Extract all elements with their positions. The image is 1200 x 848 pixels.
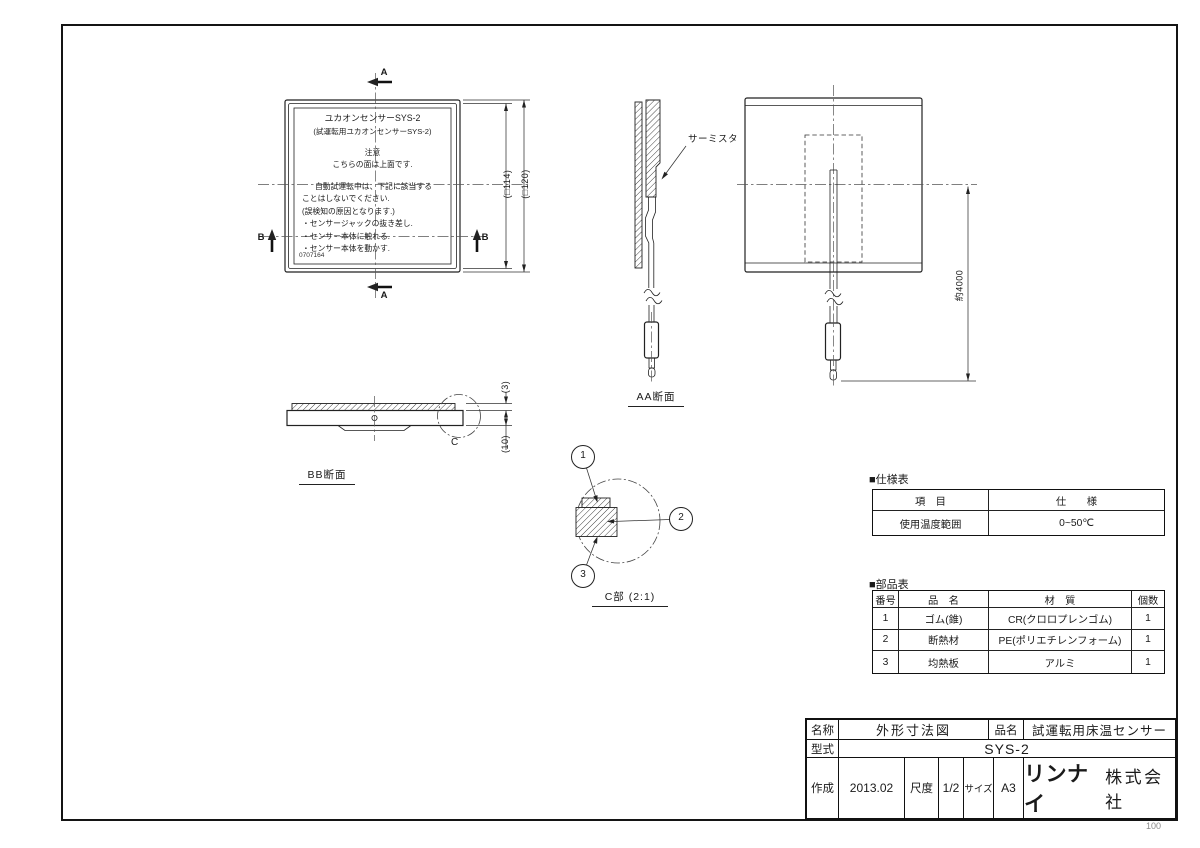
- spec-table-heading: ■仕様表: [869, 471, 909, 487]
- section-marker-b-right: B: [478, 232, 492, 243]
- part-row-no: 1: [873, 608, 899, 630]
- balloon-2: 2: [672, 512, 690, 523]
- title-size-value: A3: [994, 758, 1024, 818]
- section-aa-view: [635, 100, 686, 384]
- warning-line: (誤検知の原因となります.): [302, 206, 451, 218]
- section-bb-view: [287, 392, 512, 450]
- sticker-subtitle: (試運転用ユカオンセンサーSYS-2): [294, 126, 451, 137]
- detail-marker-c: C: [451, 437, 458, 448]
- parts-col-material: 材 質: [989, 591, 1132, 608]
- parts-col-no: 番号: [873, 591, 899, 608]
- part-row-name: 均熱板: [899, 651, 989, 673]
- thermistor-callout: サーミスタ: [688, 131, 738, 145]
- bullet-item: ・センサー本体を動かす.: [302, 243, 451, 255]
- part-row-material: CR(クロロプレンゴム): [989, 608, 1132, 630]
- company-name: リンナイ 株式会社: [1024, 758, 1175, 818]
- title-created-value: 2013.02: [839, 758, 905, 818]
- sticker-warning-text: 自動試運転中は、下記に該当する ことはしないでください. (誤検知の原因となりま…: [294, 181, 451, 218]
- title-product-label: 品名: [989, 720, 1024, 739]
- title-product-value: 試運転用床温センサー: [1024, 720, 1175, 739]
- part-row-no: 2: [873, 630, 899, 652]
- spec-col-spec: 仕 様: [989, 490, 1164, 511]
- part-row-material: アルミ: [989, 651, 1132, 673]
- part-row-name: ゴム(錐): [899, 608, 989, 630]
- dim-square-120: (□120): [520, 144, 530, 224]
- detail-c-title: C部 (2:1): [592, 589, 668, 607]
- dim-10: (10): [500, 424, 510, 464]
- part-row-no: 3: [873, 651, 899, 673]
- sticker-part-code: 0707164: [299, 250, 324, 261]
- balloon-3: 3: [574, 569, 592, 580]
- part-row-qty: 1: [1132, 651, 1164, 673]
- title-block: 名称 外形寸法図 品名 試運転用床温センサー 型式 SYS-2 作成 2013.…: [805, 718, 1177, 820]
- parts-col-qty: 個数: [1132, 591, 1164, 608]
- drawing-frame: [62, 25, 1177, 820]
- page-number: 100: [1146, 821, 1161, 831]
- part-row-name: 断熱材: [899, 630, 989, 652]
- part-row-qty: 1: [1132, 608, 1164, 630]
- part-row-material: PE(ポリエチレンフォーム): [989, 630, 1132, 652]
- title-model-label: 型式: [807, 740, 839, 757]
- sensor-label-sticker: ユカオンセンサーSYS-2 (試運転用ユカオンセンサーSYS-2) 注意 こちら…: [294, 108, 451, 264]
- balloon-1: 1: [574, 450, 592, 461]
- parts-col-name: 品 名: [899, 591, 989, 608]
- sticker-caution-heading: 注意: [294, 147, 451, 158]
- part-row-qty: 1: [1132, 630, 1164, 652]
- title-name-label: 名称: [807, 720, 839, 739]
- dim-3: (3): [500, 367, 510, 407]
- dim-square-114: (□114): [502, 144, 512, 224]
- dim-cable-length: 約4000: [953, 246, 966, 326]
- spec-row-item: 使用温度範囲: [873, 511, 989, 535]
- company-logo: リンナイ: [1024, 758, 1101, 818]
- engineering-drawing-page: ユカオンセンサーSYS-2 (試運転用ユカオンセンサーSYS-2) 注意 こちら…: [0, 0, 1200, 848]
- warning-line: 自動試運転中は、下記に該当する: [302, 181, 451, 193]
- section-marker-b-left: B: [254, 232, 268, 243]
- bullet-item: ・センサー本体に触れる.: [302, 231, 451, 243]
- sticker-caution-line: こちらの面は上面です.: [294, 159, 451, 170]
- section-marker-a-top: A: [377, 67, 391, 78]
- title-created-label: 作成: [807, 758, 839, 818]
- parts-table: 番号 品 名 材 質 個数 1 ゴム(錐) CR(クロロプレンゴム) 1 2 断…: [872, 590, 1165, 674]
- title-scale-label: 尺度: [905, 758, 939, 818]
- section-bb-title: BB断面: [299, 467, 355, 485]
- title-name-value: 外形寸法図: [839, 720, 989, 739]
- section-marker-a-bottom: A: [377, 290, 391, 301]
- title-model-value: SYS-2: [839, 740, 1175, 757]
- title-size-label: サイズ: [964, 758, 994, 818]
- sticker-title: ユカオンセンサーSYS-2: [294, 108, 451, 124]
- company-suffix: 株式会社: [1105, 763, 1175, 813]
- title-scale-value: 1/2: [939, 758, 964, 818]
- spec-table: 項 目 仕 様 使用温度範囲 0~50℃: [872, 489, 1165, 536]
- spec-col-item: 項 目: [873, 490, 989, 511]
- warning-line: ことはしないでください.: [302, 193, 451, 205]
- spec-row-value: 0~50℃: [989, 511, 1164, 535]
- section-aa-title: AA断面: [628, 389, 684, 407]
- bullet-item: ・センサージャックの抜き差し.: [302, 218, 451, 230]
- back-view: [737, 85, 977, 386]
